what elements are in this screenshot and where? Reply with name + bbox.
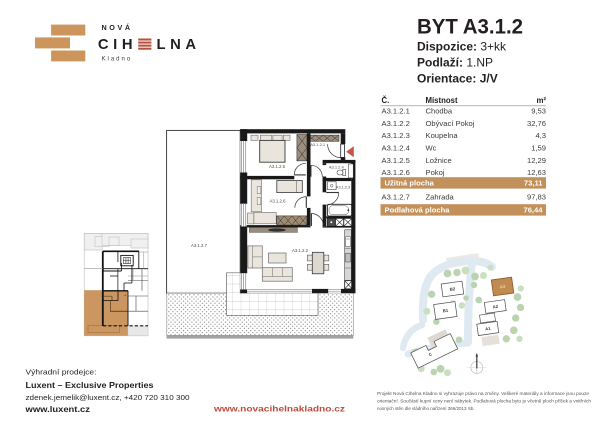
svg-text:orientační. Součástí kupní cen: orientační. Součástí kupní ceny není náb…: [377, 398, 592, 403]
svg-text:A3.1.2.2: A3.1.2.2: [382, 119, 410, 128]
svg-text:A3.1.2.5: A3.1.2.5: [382, 156, 410, 165]
svg-text:Ložnice: Ložnice: [426, 156, 452, 165]
svg-text:www.luxent.cz: www.luxent.cz: [24, 405, 90, 414]
svg-text:zdenek.jemelik@luxent.cz, +420: zdenek.jemelik@luxent.cz, +420 720 310 3…: [26, 393, 190, 402]
svg-text:A3.1.2.5: A3.1.2.5: [269, 164, 286, 169]
svg-text:A3.1.2.3: A3.1.2.3: [382, 131, 410, 140]
svg-text:A3.1.2.6: A3.1.2.6: [382, 168, 410, 177]
svg-text:76,44: 76,44: [523, 205, 543, 214]
svg-text:Luxent – Exclusive Properties: Luxent – Exclusive Properties: [26, 380, 154, 390]
svg-text:Užitná plocha: Užitná plocha: [385, 178, 435, 187]
svg-text:A3.1.2.4: A3.1.2.4: [382, 144, 410, 153]
svg-text:www.novacihelnakladno.cz: www.novacihelnakladno.cz: [213, 405, 345, 414]
svg-text:Projekt Nová Cihelna Kladno si: Projekt Nová Cihelna Kladno si vyhrazuje…: [377, 391, 590, 396]
svg-text:A3.1.2.1: A3.1.2.1: [310, 142, 326, 147]
svg-text:Chodba: Chodba: [426, 107, 453, 116]
svg-text:9,53: 9,53: [531, 107, 546, 116]
svg-text:Obývací Pokoj: Obývací Pokoj: [426, 119, 475, 128]
svg-text:Podlahová plocha: Podlahová plocha: [385, 205, 451, 214]
svg-text:NOVÁ: NOVÁ: [102, 23, 133, 32]
svg-text:32,76: 32,76: [527, 119, 546, 128]
svg-text:1,59: 1,59: [531, 144, 546, 153]
svg-text:97,83: 97,83: [527, 193, 546, 202]
svg-text:A3.1.2.3: A3.1.2.3: [336, 185, 350, 189]
svg-text:Místnost: Místnost: [426, 96, 458, 105]
svg-text:12,29: 12,29: [527, 156, 546, 165]
svg-text:Orientace: J/V: Orientace: J/V: [417, 72, 498, 86]
svg-text:Dispozice: 3+kk: Dispozice: 3+kk: [417, 40, 507, 54]
svg-text:Kladno: Kladno: [102, 56, 133, 62]
svg-text:A3.1.2.1: A3.1.2.1: [382, 107, 410, 116]
svg-text:m²: m²: [536, 96, 546, 105]
svg-text:A3.1.2.7: A3.1.2.7: [382, 193, 410, 202]
svg-text:Koupelna: Koupelna: [426, 131, 459, 140]
svg-text:nosných stěn dle vládního naří: nosných stěn dle vládního nařízení 366/2…: [377, 406, 475, 411]
svg-text:Č.: Č.: [382, 96, 390, 105]
svg-text:LNA: LNA: [157, 37, 201, 53]
svg-text:Zahrada: Zahrada: [426, 193, 455, 202]
svg-text:A3.1.2.7: A3.1.2.7: [191, 243, 208, 248]
svg-text:BYT A3.1.2: BYT A3.1.2: [417, 15, 523, 39]
svg-text:4,3: 4,3: [535, 131, 546, 140]
svg-text:A3.1.2.6: A3.1.2.6: [269, 199, 286, 204]
svg-text:Wc: Wc: [426, 144, 437, 153]
svg-text:12,63: 12,63: [527, 168, 546, 177]
svg-text:CIH: CIH: [98, 37, 137, 53]
svg-text:Pokoj: Pokoj: [426, 168, 445, 177]
svg-text:A3.1.2.4: A3.1.2.4: [329, 165, 345, 170]
svg-text:73,11: 73,11: [524, 178, 543, 187]
svg-text:A3.1.2.2: A3.1.2.2: [292, 248, 309, 253]
svg-text:Výhradní prodejce:: Výhradní prodejce:: [26, 368, 97, 377]
svg-text:Podlaží: 1.NP: Podlaží: 1.NP: [417, 56, 493, 70]
